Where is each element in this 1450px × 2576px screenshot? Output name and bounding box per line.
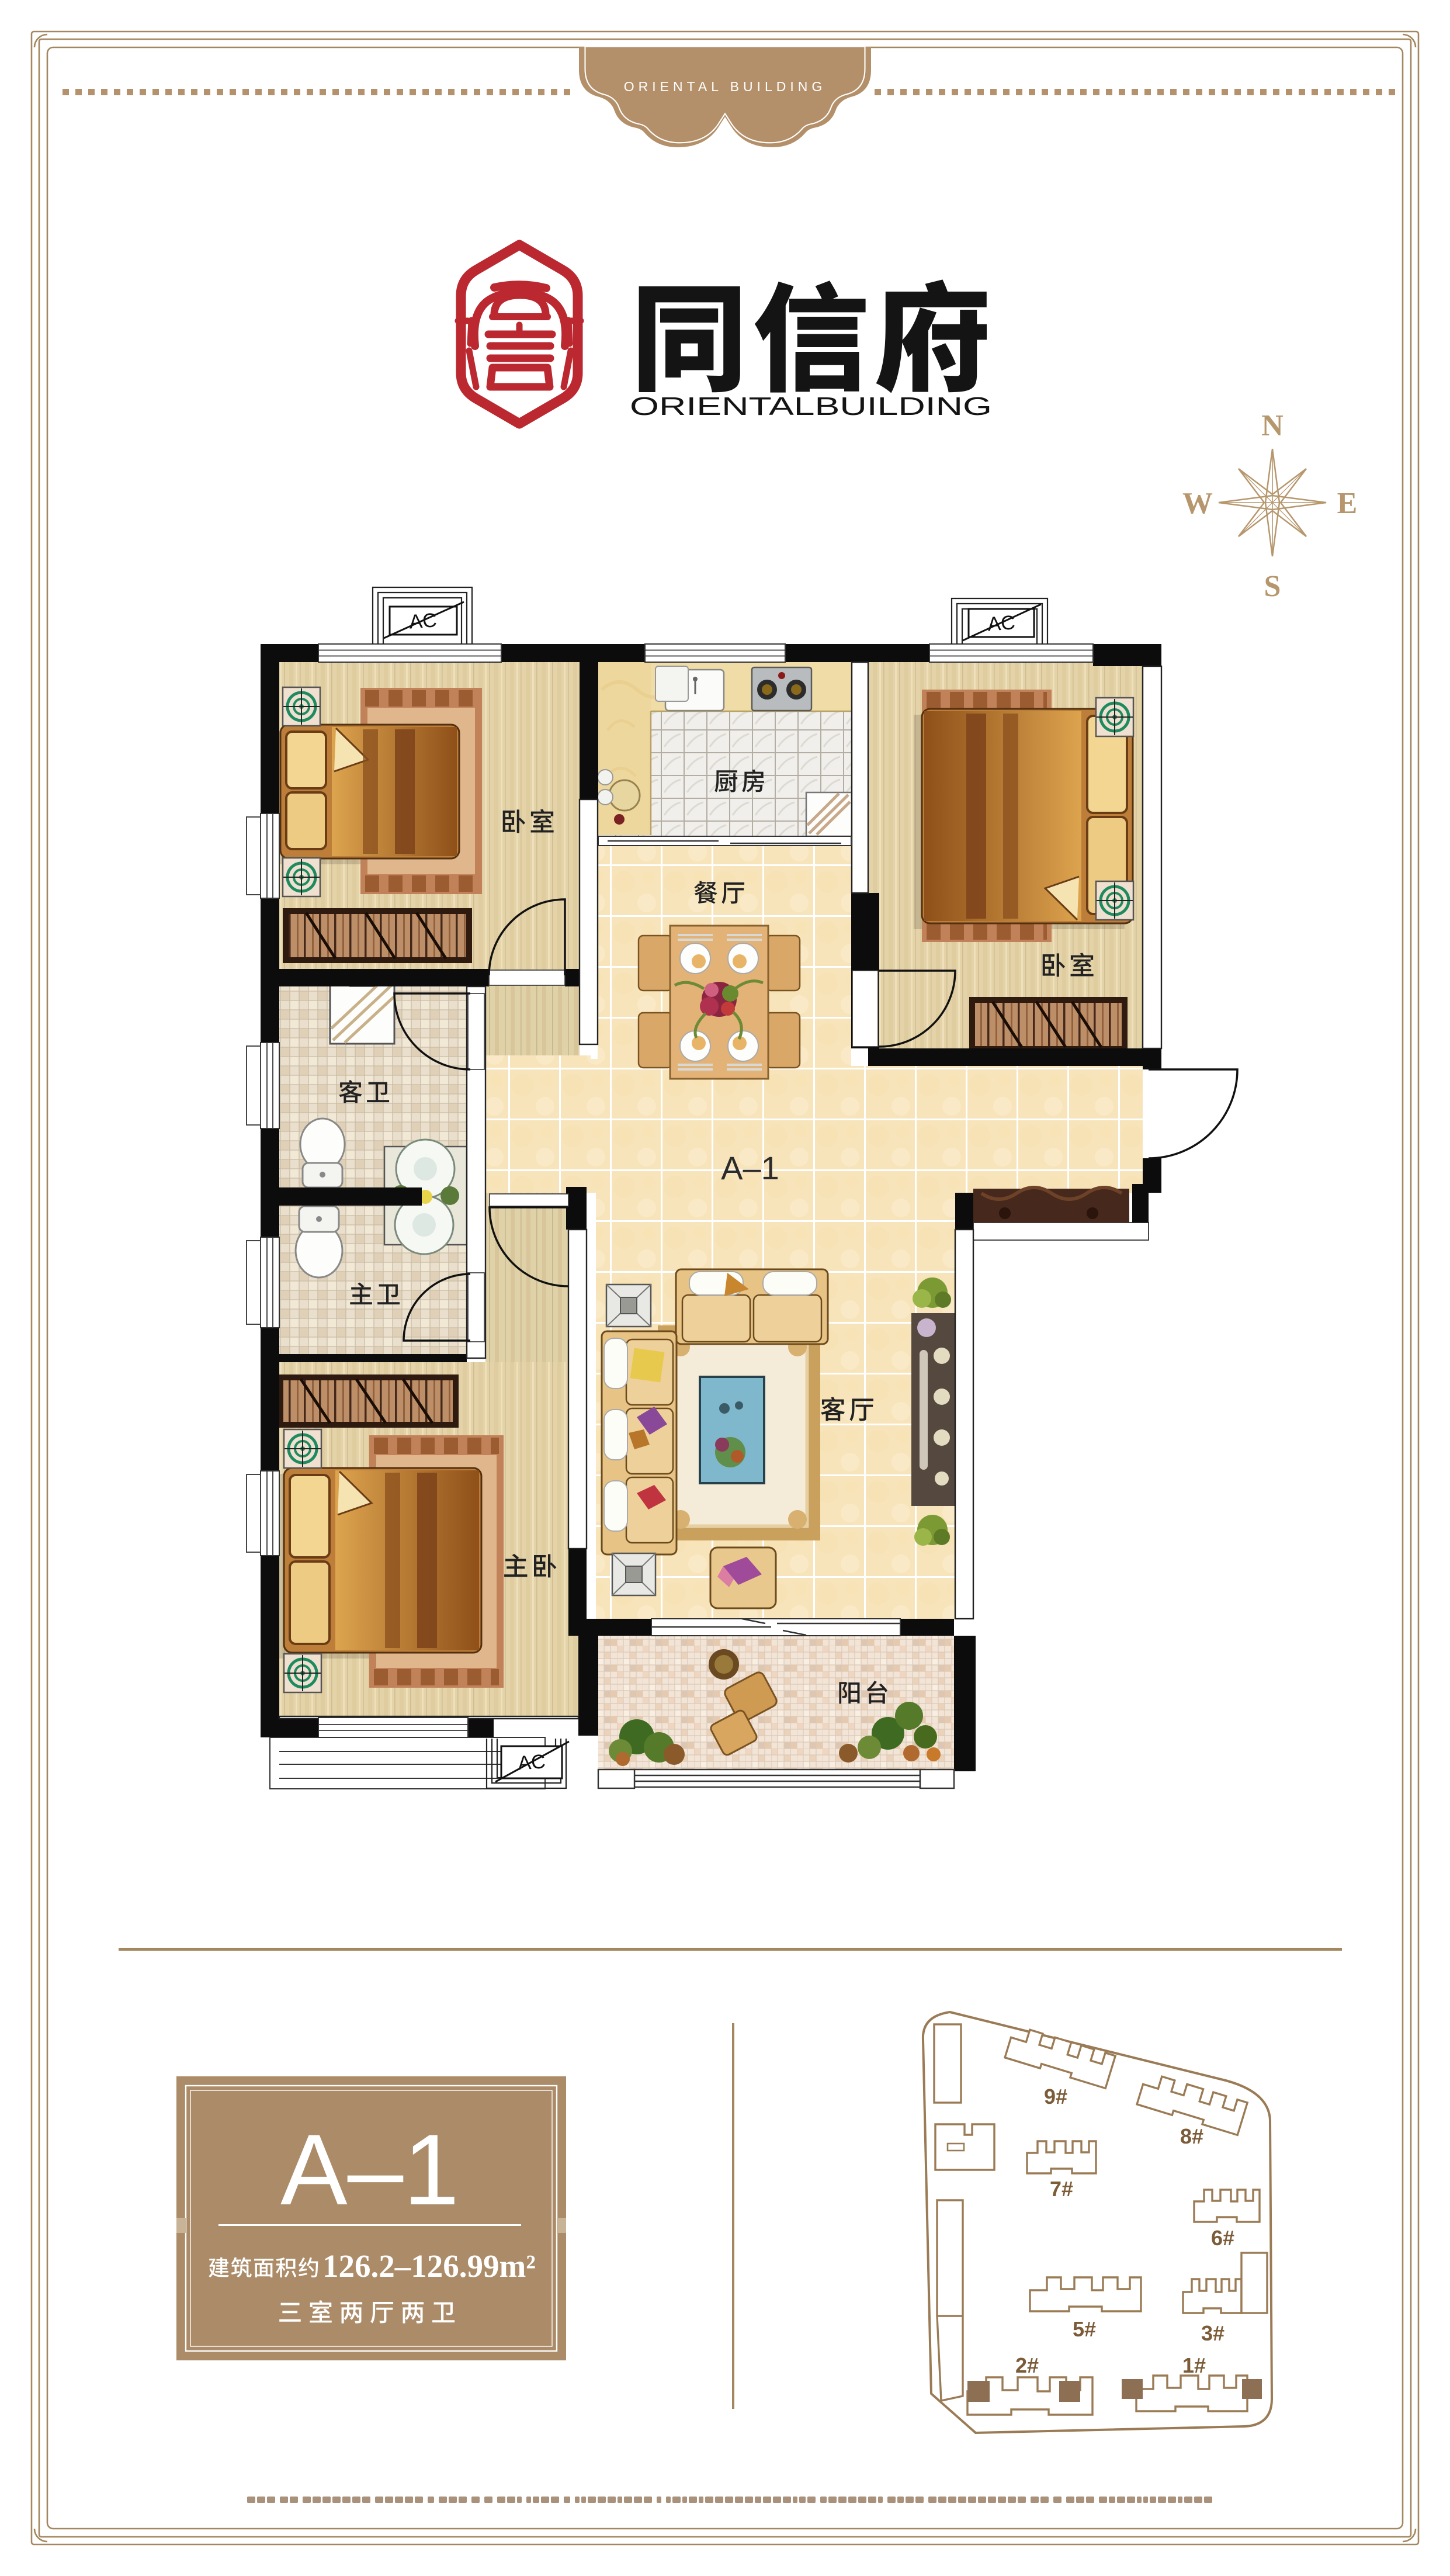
svg-text:5#: 5# <box>1073 2317 1096 2341</box>
svg-text:ORIENTALBUILDING: ORIENTALBUILDING <box>630 392 992 421</box>
svg-text:2#: 2# <box>1015 2353 1039 2377</box>
svg-text:9#: 9# <box>1044 2085 1067 2108</box>
svg-text:A–1: A–1 <box>721 1149 779 1186</box>
svg-text:W: W <box>1182 487 1213 520</box>
svg-text:6#: 6# <box>1211 2226 1234 2250</box>
svg-text:3#: 3# <box>1201 2321 1224 2345</box>
svg-text:E: E <box>1337 487 1358 520</box>
svg-text:ORIENTAL BUILDING: ORIENTAL BUILDING <box>624 79 826 94</box>
svg-text:A–1: A–1 <box>280 2114 459 2226</box>
svg-text:126.2–126.99m²: 126.2–126.99m² <box>322 2248 536 2284</box>
svg-text:N: N <box>1261 409 1284 442</box>
svg-text:AC: AC <box>987 611 1016 635</box>
svg-text:1#: 1# <box>1182 2353 1206 2377</box>
svg-text:S: S <box>1264 570 1281 603</box>
svg-text:7#: 7# <box>1050 2177 1073 2201</box>
svg-text:AC: AC <box>517 1750 546 1774</box>
svg-text:8#: 8# <box>1180 2124 1203 2148</box>
svg-text:AC: AC <box>408 609 438 633</box>
